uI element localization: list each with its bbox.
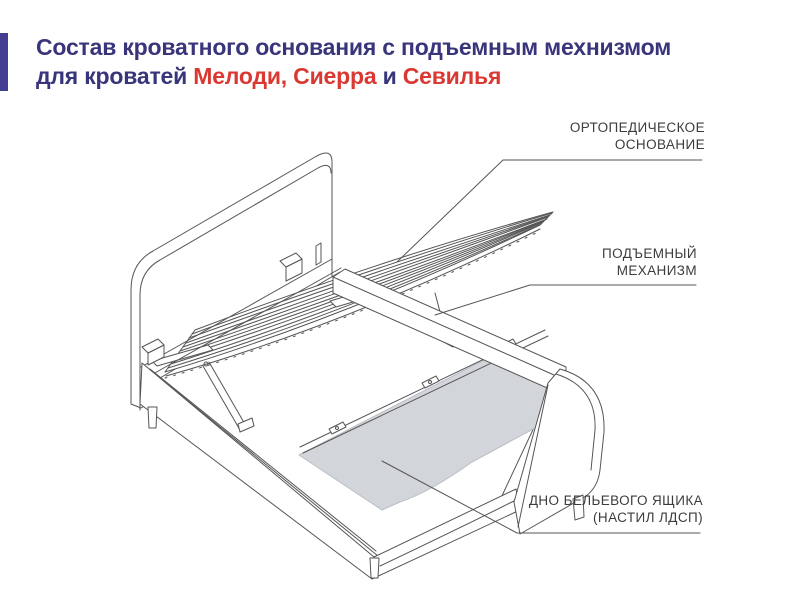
callout-orthopedic-line2: ОСНОВАНИЕ <box>570 136 705 153</box>
leader-lift-mechanism <box>435 285 696 315</box>
callout-drawer-line2: (НАСТИЛ ЛДСП) <box>529 509 703 526</box>
callout-drawer-line1: ДНО БЕЛЬЕВОГО ЯЩИКА <box>529 492 703 509</box>
callout-mechanism-line2: МЕХАНИЗМ <box>602 262 697 279</box>
callout-mechanism-line1: ПОДЪЕМНЫЙ <box>602 245 697 262</box>
callout-orthopedic-line1: ОРТОПЕДИЧЕСКОЕ <box>570 119 705 136</box>
callout-orthopedic-base: ОРТОПЕДИЧЕСКОЕ ОСНОВАНИЕ <box>570 119 705 153</box>
infographic-page: Состав кроватного основания с подъемным … <box>0 0 800 600</box>
callout-lift-mechanism: ПОДЪЕМНЫЙ МЕХАНИЗМ <box>602 245 697 279</box>
callout-drawer-bottom: ДНО БЕЛЬЕВОГО ЯЩИКА (НАСТИЛ ЛДСП) <box>529 492 703 526</box>
